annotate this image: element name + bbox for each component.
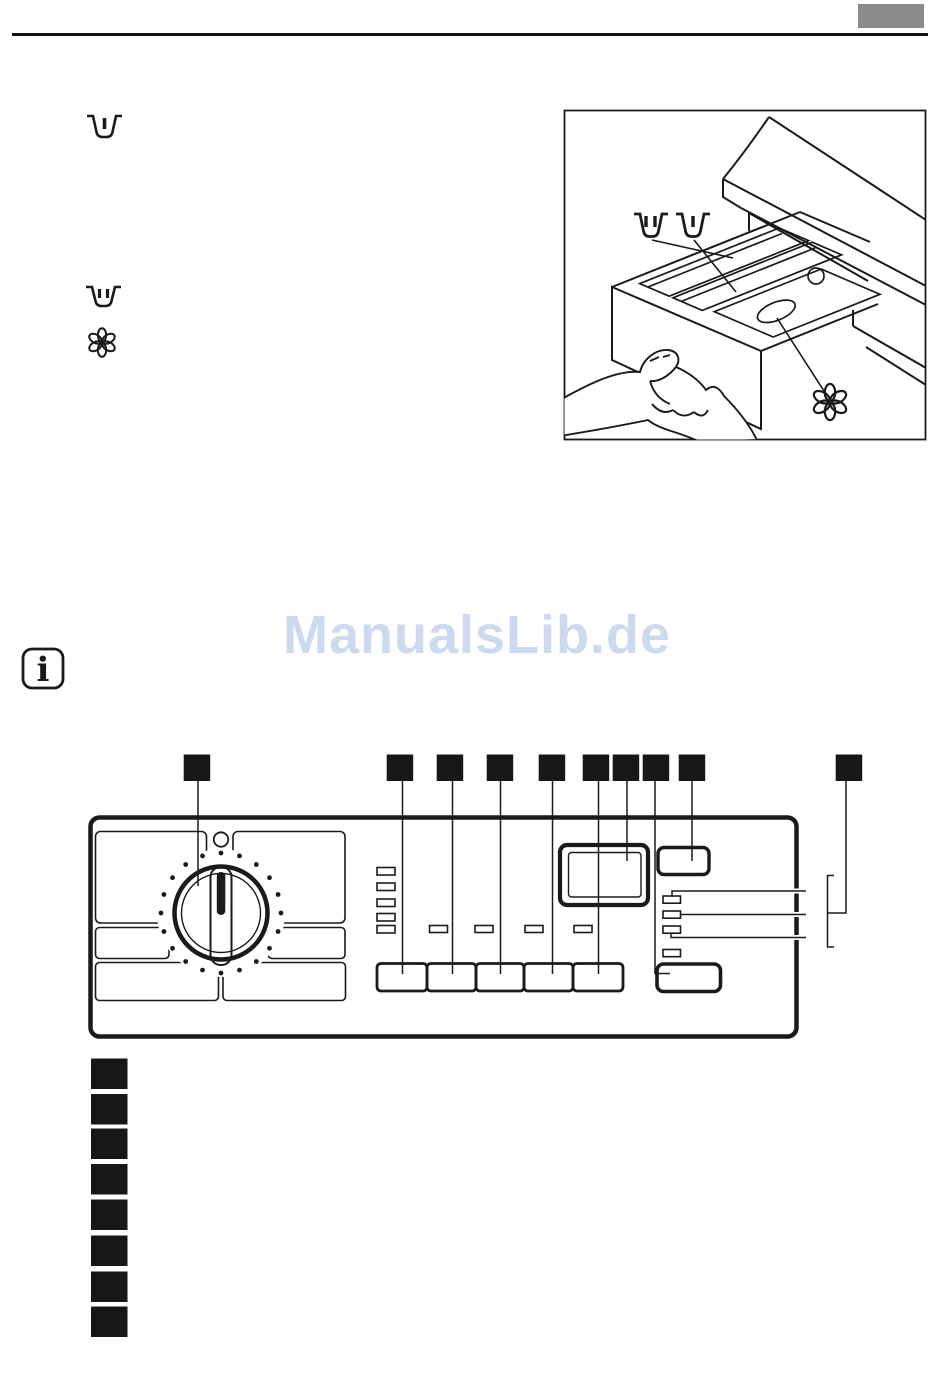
page-artwork: i <box>0 0 950 1381</box>
indicator-callout-lines <box>671 891 806 938</box>
list-marker <box>91 1200 128 1231</box>
callout-lines <box>198 781 846 974</box>
callout-marker <box>613 755 640 782</box>
list-marker <box>91 1094 128 1125</box>
manual-page: ManualsLib.de <box>0 0 950 1381</box>
list-markers <box>91 1059 128 1338</box>
option-button-4 <box>524 964 573 992</box>
control-panel-figure <box>91 755 863 1037</box>
button-indicator-leds <box>430 926 593 933</box>
machine-cabinet <box>723 117 926 385</box>
callout-marker <box>387 755 414 782</box>
callout-marker <box>539 755 566 782</box>
prewash-compartment-icon <box>87 116 122 137</box>
display <box>560 845 648 905</box>
callout-marker <box>836 755 863 782</box>
callout-marker <box>437 755 464 782</box>
list-marker <box>91 1307 128 1338</box>
callout-marker <box>487 755 514 782</box>
softener-symbol <box>777 318 848 420</box>
callout-marker <box>583 755 610 782</box>
list-marker <box>91 1236 128 1267</box>
info-icon: i <box>23 649 63 690</box>
list-marker <box>91 1129 128 1160</box>
option-indicator-leds <box>377 868 395 934</box>
detergent-drawer-figure <box>560 111 926 443</box>
delay-start-button[interactable] <box>657 964 721 992</box>
option-button-2 <box>427 964 476 992</box>
callout-marker <box>643 755 670 782</box>
list-marker <box>91 1272 128 1303</box>
svg-text:i: i <box>37 650 50 690</box>
list-marker <box>91 1164 128 1195</box>
dial-indicator-light <box>214 832 228 846</box>
start-pause-button[interactable] <box>658 848 709 875</box>
callout-markers <box>184 755 863 782</box>
softener-compartment-icon <box>88 328 117 357</box>
status-indicator-leds <box>663 896 681 957</box>
main-wash-compartment-icon <box>86 287 121 306</box>
prewash-symbol <box>676 214 736 292</box>
list-marker <box>91 1059 128 1090</box>
callout-marker <box>184 755 211 782</box>
callout-marker <box>679 755 706 782</box>
